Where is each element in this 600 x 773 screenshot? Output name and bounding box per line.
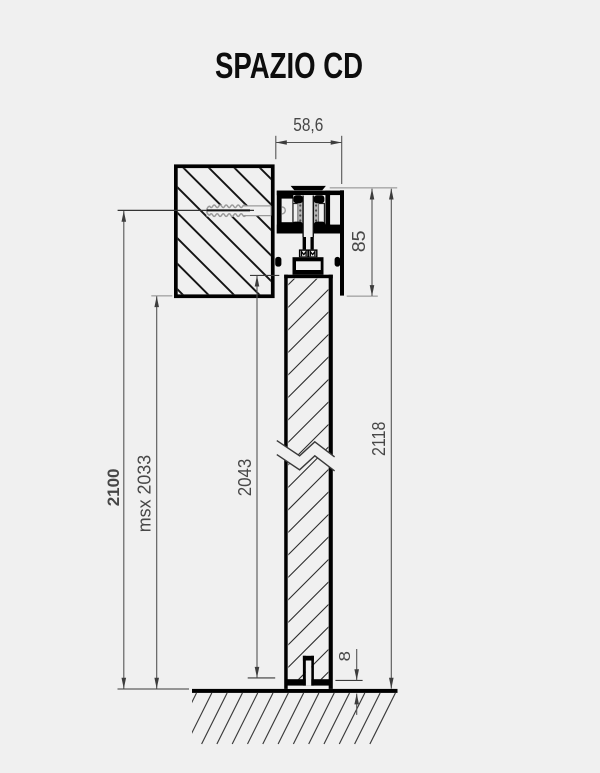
svg-text:2100: 2100 xyxy=(104,469,123,507)
svg-text:2118: 2118 xyxy=(369,422,389,456)
svg-text:85: 85 xyxy=(349,231,369,253)
svg-text:8: 8 xyxy=(337,651,354,662)
svg-text:58,6: 58,6 xyxy=(293,115,323,135)
svg-text:SPAZIO CD: SPAZIO CD xyxy=(215,45,363,86)
svg-text:2043: 2043 xyxy=(235,459,255,497)
svg-text:msx 2033: msx 2033 xyxy=(135,455,155,532)
